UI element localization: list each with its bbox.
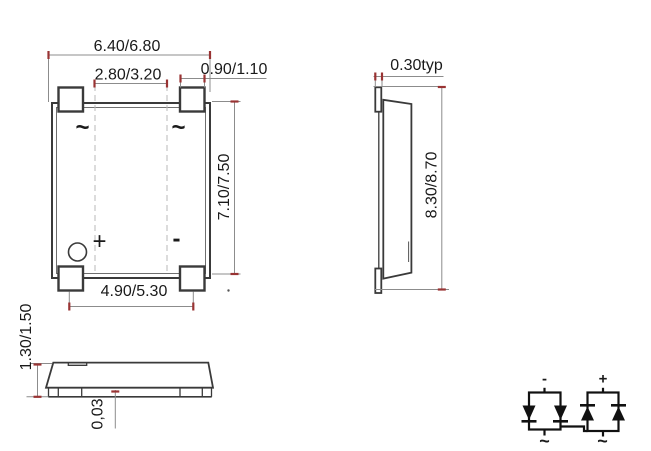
schematic-ac-left-label: ~ [539,431,550,451]
terminal-bottom-left [59,267,84,291]
terminal-bottom-right [180,267,205,291]
bridge-schematic: - + ~ ~ [522,371,627,451]
dim-body-height-label: 7.10/7.50 [216,154,233,221]
dim-terminal-width-label: 0.90/1.10 [201,61,268,78]
lead-top-side [375,87,381,111]
schematic-ac-right-label: ~ [597,431,608,451]
schematic-plus-label: + [599,371,608,388]
dim-body-width-label: 6.40/6.80 [94,38,161,55]
dim-terminal-width: 0.90/1.10 [181,61,268,88]
technical-drawing-canvas: ~ ~ + - 6.40/6.80 2.80/3.20 0.9 [0,0,651,451]
ac-marking-left: ~ [75,114,89,141]
dim-terminal-pitch-label: 2.80/3.20 [95,67,162,84]
terminal-top-left [59,88,84,112]
front-view: ~ ~ + - 6.40/6.80 2.80/3.20 0.9 [49,38,268,311]
diode-1-triangle [523,406,536,421]
dim-standoff-label: 0,03 [90,398,107,429]
dim-lead-thickness-label: 0.30typ [390,57,443,74]
profile-view: 1.30/1.50 0,03 [18,304,213,430]
stray-dot [227,289,229,291]
dim-overall-height-label: 8.30/8.70 [424,152,441,219]
schematic-loop-minus [529,393,561,430]
body-profile-outline [46,363,213,388]
package-drawing-page: ~ ~ + - 6.40/6.80 2.80/3.20 0.9 [0,0,651,451]
schematic-loop-plus [588,393,619,432]
diode-2-triangle [554,406,567,421]
minus-marking: - [173,226,181,253]
ac-marking-right: ~ [171,114,185,141]
dim-standoff: 0,03 [90,390,120,430]
terminal-top-right [180,88,205,112]
side-view: 0.30typ 8.30/8.70 [374,57,450,293]
plus-marking: + [92,228,106,255]
schematic-crossover [561,427,588,432]
dim-lead-thickness: 0.30typ [374,57,444,87]
schematic-minus-label: - [542,371,547,388]
dim-body-thickness-label: 1.30/1.50 [18,304,35,371]
dim-terminal-span: 4.90/5.30 [69,283,193,311]
dim-terminal-pitch: 2.80/3.20 [95,67,168,88]
body-side-outline [383,100,411,279]
diode-4-triangle [612,407,625,421]
dim-terminal-span-label: 4.90/5.30 [101,283,168,300]
dim-body-height: 7.10/7.50 [212,102,241,275]
diode-3-triangle [581,407,594,421]
